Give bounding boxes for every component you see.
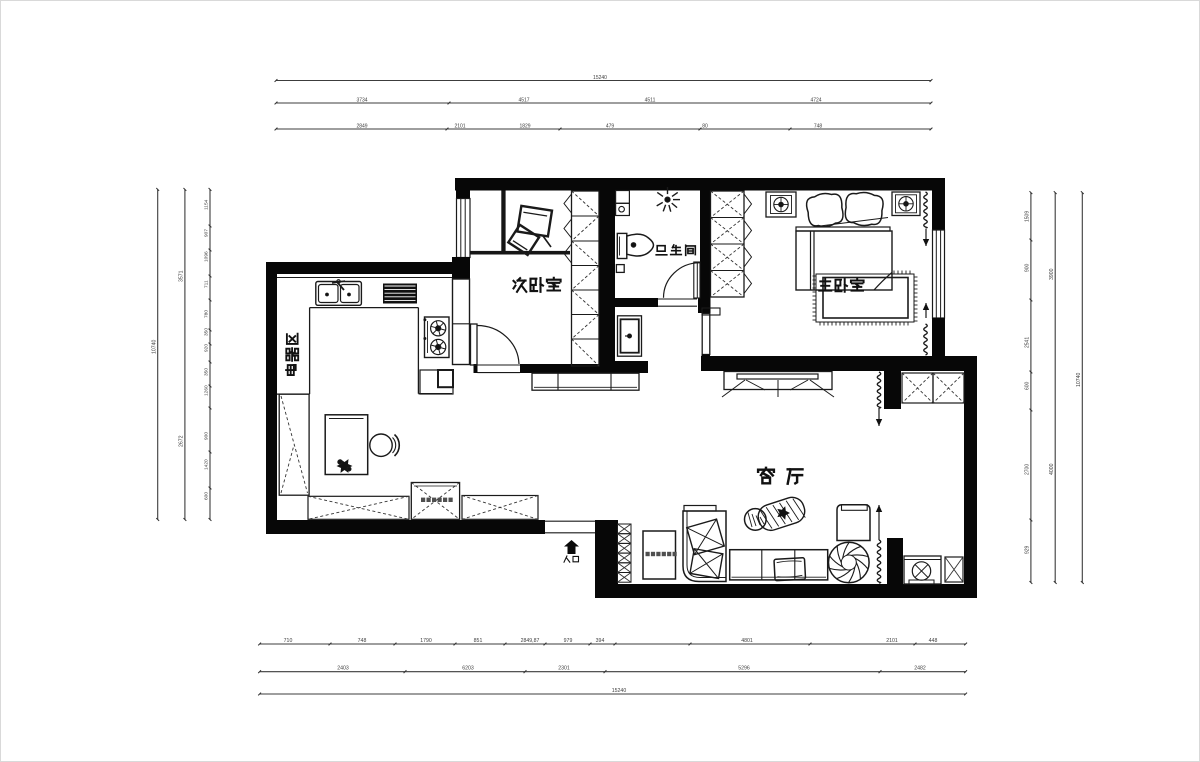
svg-text:4724: 4724: [810, 98, 821, 104]
svg-text:2101: 2101: [886, 638, 898, 644]
svg-text:711: 711: [204, 280, 210, 288]
svg-text:1154: 1154: [204, 199, 210, 210]
svg-text:851: 851: [474, 638, 483, 644]
svg-text:979: 979: [564, 638, 573, 644]
svg-text:80: 80: [702, 124, 708, 130]
svg-text:1260: 1260: [204, 385, 210, 396]
svg-text:10740: 10740: [152, 339, 158, 354]
svg-text:748: 748: [358, 638, 367, 644]
svg-text:600: 600: [204, 492, 210, 500]
svg-text:2700: 2700: [1025, 464, 1031, 475]
svg-text:1096: 1096: [204, 251, 210, 262]
svg-text:900: 900: [204, 432, 210, 440]
svg-text:4511: 4511: [645, 98, 656, 104]
svg-text:3900: 3900: [1049, 268, 1055, 280]
svg-text:2849,87: 2849,87: [521, 638, 540, 644]
svg-text:5296: 5296: [738, 666, 750, 672]
svg-text:394: 394: [596, 638, 605, 644]
svg-text:920: 920: [204, 344, 210, 352]
svg-text:15240: 15240: [593, 75, 607, 81]
svg-text:1829: 1829: [519, 124, 530, 130]
svg-text:900: 900: [1025, 263, 1031, 272]
svg-text:15240: 15240: [612, 688, 627, 694]
svg-text:600: 600: [1025, 381, 1031, 390]
svg-text:4517: 4517: [518, 98, 529, 104]
svg-text:2541: 2541: [1025, 337, 1031, 348]
svg-text:350: 350: [204, 368, 210, 376]
svg-text:2482: 2482: [914, 666, 926, 672]
svg-text:2101: 2101: [454, 124, 465, 130]
svg-text:2672: 2672: [179, 435, 185, 447]
svg-text:748: 748: [814, 124, 823, 130]
svg-text:1790: 1790: [420, 638, 432, 644]
svg-text:710: 710: [284, 638, 293, 644]
svg-text:448: 448: [929, 638, 938, 644]
svg-text:3571: 3571: [179, 270, 185, 282]
svg-text:1509: 1509: [1025, 211, 1031, 222]
svg-text:10740: 10740: [1076, 372, 1082, 387]
svg-text:2403: 2403: [337, 666, 349, 672]
svg-text:780: 780: [204, 310, 210, 318]
svg-text:2849: 2849: [356, 124, 367, 130]
svg-text:3734: 3734: [356, 98, 367, 104]
svg-text:2301: 2301: [558, 666, 570, 672]
svg-text:6203: 6203: [462, 666, 474, 672]
svg-text:907: 907: [204, 229, 210, 237]
svg-text:1420: 1420: [204, 459, 210, 470]
svg-text:4801: 4801: [741, 638, 753, 644]
svg-text:929: 929: [1025, 545, 1031, 554]
svg-text:4000: 4000: [1049, 463, 1055, 475]
svg-text:479: 479: [606, 124, 615, 130]
